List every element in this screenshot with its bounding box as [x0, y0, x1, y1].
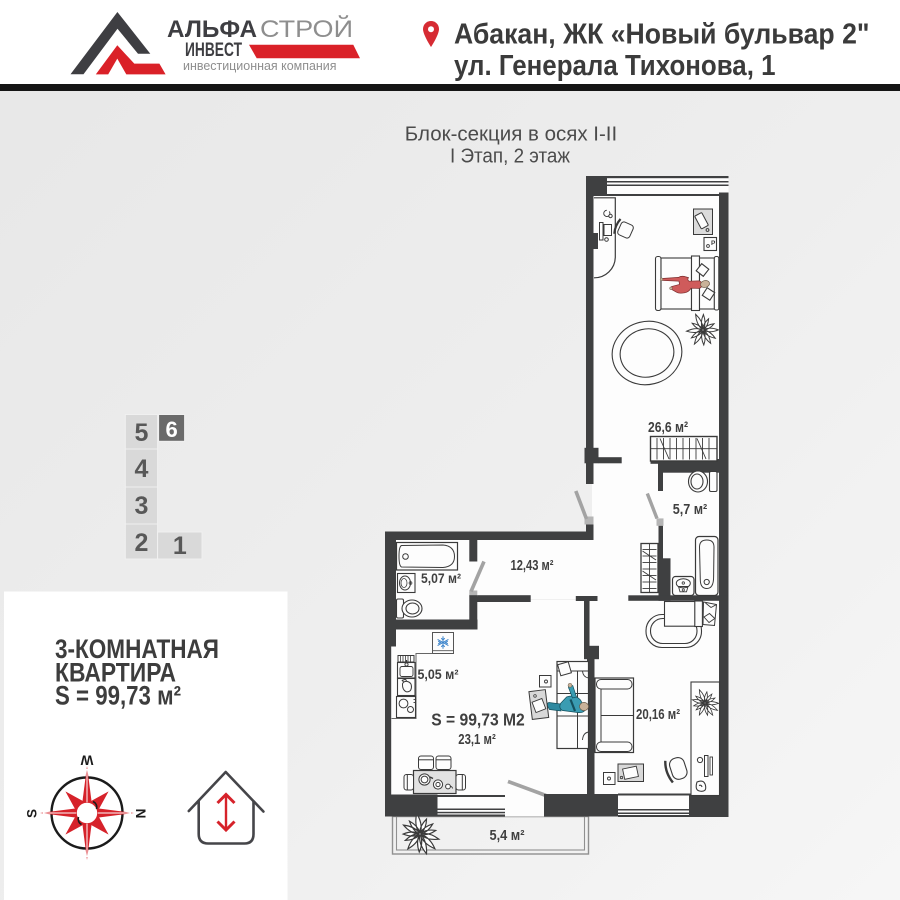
svg-text:23,1 м²: 23,1 м² [458, 732, 496, 748]
svg-text:5,05 м²: 5,05 м² [418, 666, 459, 682]
svg-text:АЛЬФА: АЛЬФА [167, 16, 257, 43]
svg-text:ул. Генерала Тихонова, 1: ул. Генерала Тихонова, 1 [454, 50, 776, 82]
svg-text:6: 6 [165, 417, 177, 442]
svg-text:ИНВЕСТ: ИНВЕСТ [185, 40, 242, 61]
svg-text:2: 2 [134, 529, 148, 557]
svg-text:26,6 м²: 26,6 м² [648, 419, 688, 436]
svg-text:N: N [134, 809, 149, 819]
svg-text:3: 3 [134, 492, 148, 520]
svg-text:Р: Р [711, 240, 716, 247]
svg-text:5,7 м²: 5,7 м² [673, 502, 708, 518]
svg-text:20,16 м²: 20,16 м² [636, 707, 680, 723]
svg-text:СТРОЙ: СТРОЙ [260, 15, 353, 43]
svg-text:S = 99,73 м²: S = 99,73 м² [55, 681, 181, 711]
svg-text:12,43 м²: 12,43 м² [511, 558, 554, 574]
svg-text:W: W [80, 753, 93, 768]
svg-text:I Этап, 2 этаж: I Этап, 2 этаж [450, 144, 570, 167]
svg-text:Блок-секция в осях I-II: Блок-секция в осях I-II [405, 123, 617, 146]
svg-text:5,07 м²: 5,07 м² [421, 570, 461, 586]
svg-text:4: 4 [134, 455, 148, 483]
svg-text:S: S [25, 809, 40, 818]
svg-text:5: 5 [134, 419, 148, 447]
svg-text:1: 1 [173, 532, 187, 560]
svg-text:Абакан, ЖК «Новый бульвар 2": Абакан, ЖК «Новый бульвар 2" [454, 19, 870, 51]
svg-text:5,4 м²: 5,4 м² [490, 828, 525, 844]
svg-text:S = 99,73 М2: S = 99,73 М2 [431, 710, 525, 730]
svg-text:инвестиционная компания: инвестиционная компания [183, 59, 337, 73]
